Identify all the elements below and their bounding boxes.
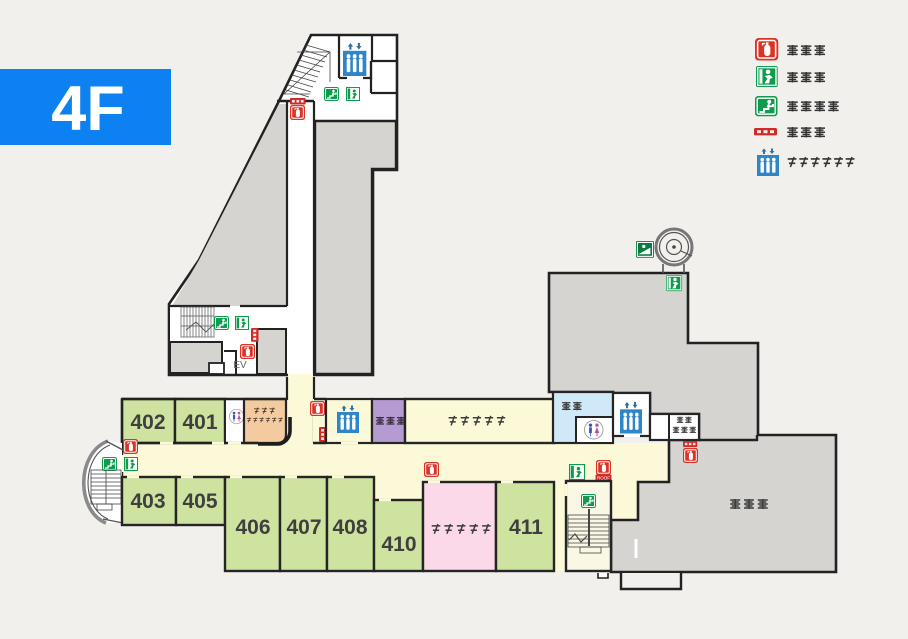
svg-text:406: 406: [235, 516, 270, 539]
svg-text:4F: 4F: [51, 74, 125, 144]
svg-text:410: 410: [381, 533, 416, 556]
svg-text:402: 402: [130, 411, 165, 434]
svg-text:407: 407: [286, 516, 321, 539]
svg-text:401: 401: [182, 411, 217, 434]
svg-text:411: 411: [509, 516, 543, 539]
svg-text:405: 405: [182, 490, 217, 513]
svg-text:403: 403: [130, 490, 165, 513]
svg-text:EV: EV: [233, 360, 247, 371]
svg-text:ROOF: ROOF: [597, 476, 610, 481]
svg-text:408: 408: [332, 516, 367, 539]
